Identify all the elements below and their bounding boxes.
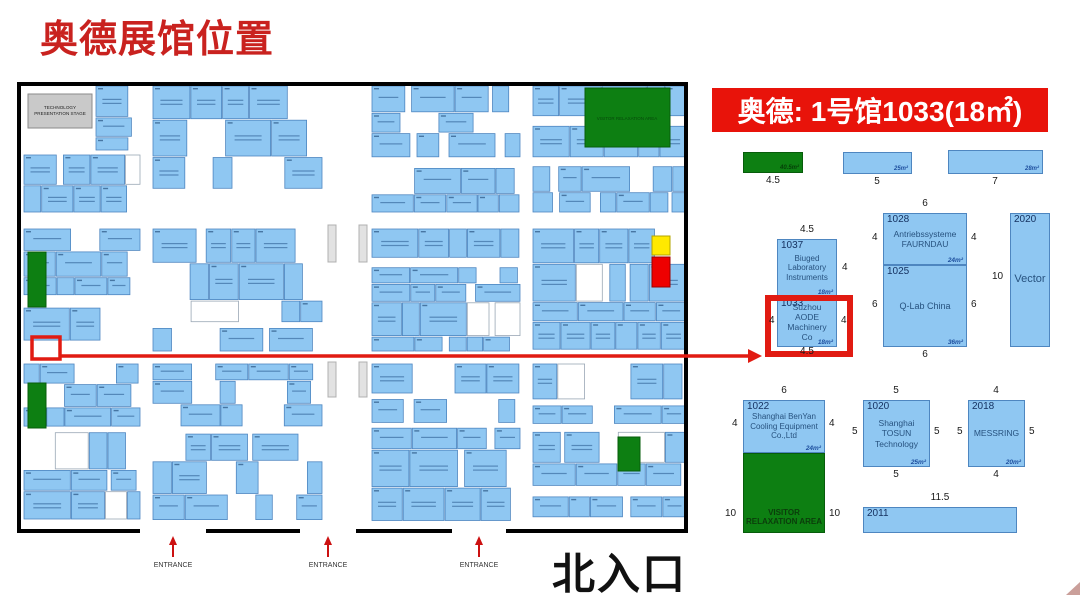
legend-booth-28: 28m² — [948, 150, 1043, 174]
map-booth — [541, 243, 565, 244]
map-booth — [414, 88, 419, 89]
map-booth — [106, 492, 127, 519]
map-booth — [624, 413, 652, 414]
dimension-label: 4.5 — [793, 224, 821, 235]
map-booth — [403, 488, 444, 520]
map-booth — [214, 436, 219, 437]
map-booth — [540, 139, 562, 140]
map-booth — [662, 310, 680, 311]
map-booth — [419, 229, 449, 257]
map-booth — [76, 188, 81, 189]
map-booth — [33, 503, 61, 504]
map-booth — [667, 434, 672, 435]
map-booth — [117, 416, 134, 417]
map-booth — [533, 432, 560, 462]
map-booth — [668, 505, 682, 506]
map-booth — [631, 364, 663, 399]
relaxation-area-label: VISITOR RELAXATION AREA — [744, 508, 824, 526]
map-booth — [153, 495, 184, 520]
map-booth — [89, 433, 107, 469]
map-booth — [71, 394, 90, 395]
map-booth — [159, 505, 178, 506]
map-booth — [256, 229, 295, 262]
dimension-label: 6 — [911, 349, 939, 360]
map-booth — [186, 434, 211, 460]
map-booth — [218, 366, 223, 367]
booth-name: MESSRING — [969, 401, 1024, 466]
map-booth — [47, 408, 64, 426]
map-booth — [455, 364, 486, 393]
dimension-label: 10 — [725, 508, 736, 519]
map-booth — [474, 245, 494, 246]
map-booth — [572, 128, 577, 129]
dimension-label: 5 — [957, 426, 963, 437]
map-booth — [559, 167, 581, 192]
map-booth — [374, 339, 379, 340]
map-booth — [282, 301, 300, 322]
map-booth — [539, 449, 555, 450]
booth-field — [24, 86, 686, 521]
map-booth — [286, 407, 291, 408]
map-booth — [414, 400, 447, 423]
map-booth — [634, 243, 649, 244]
dimension-label: 5 — [882, 469, 910, 480]
map-booth — [538, 99, 553, 100]
map-booth — [374, 452, 379, 453]
map-booth — [449, 337, 466, 351]
corner-decoration — [1066, 582, 1080, 595]
map-booth — [78, 503, 98, 504]
map-booth — [438, 286, 443, 287]
map-booth — [248, 279, 275, 280]
map-booth — [292, 170, 314, 171]
dimension-label: 4.5 — [793, 346, 821, 357]
dimension-label: 4 — [872, 232, 878, 243]
map-booth — [223, 86, 249, 119]
map-booth — [449, 197, 454, 198]
area-label: 20m² — [1006, 459, 1021, 466]
map-booth — [442, 292, 460, 293]
map-booth — [616, 322, 637, 349]
map-booth — [26, 494, 31, 495]
map-booth — [481, 488, 510, 520]
map-booth — [264, 243, 288, 244]
map-booth — [103, 188, 108, 189]
map-booth — [445, 488, 480, 520]
map-booth — [104, 254, 109, 255]
map-booth — [374, 231, 379, 232]
map-booth — [430, 321, 458, 322]
map-booth — [372, 134, 410, 157]
map-booth — [197, 104, 215, 105]
map-booth — [542, 310, 569, 311]
map-booth — [666, 338, 681, 339]
map-booth — [535, 324, 540, 325]
map-booth — [567, 338, 585, 339]
area-label: 28m² — [1025, 166, 1039, 172]
area-label: 25m² — [911, 459, 926, 466]
map-booth — [292, 174, 314, 175]
map-booth — [419, 136, 424, 137]
map-booth — [106, 197, 121, 198]
map-booth — [378, 317, 396, 318]
map-booth — [251, 366, 256, 367]
map-booth — [302, 505, 317, 506]
north-gate-label: 北入口 — [552, 540, 687, 595]
map-booth — [187, 497, 192, 498]
map-booth — [98, 88, 103, 89]
map-booth — [473, 470, 498, 471]
map-booth — [116, 479, 131, 480]
dimension-label: 5 — [882, 385, 910, 396]
dimension-label: 4.5 — [759, 175, 787, 186]
map-booth — [422, 305, 427, 306]
map-booth — [93, 157, 98, 158]
map-booth — [114, 410, 119, 411]
map-booth — [591, 322, 615, 349]
map-booth — [258, 231, 263, 232]
map-booth — [102, 103, 121, 104]
map-booth — [292, 391, 306, 392]
entrance-arrow-icon — [169, 536, 177, 545]
map-booth — [484, 292, 511, 293]
map-booth — [113, 472, 118, 473]
dimension-label: 5 — [863, 176, 891, 187]
map-booth — [499, 195, 519, 212]
map-booth — [33, 326, 60, 327]
map-booth — [70, 308, 100, 340]
map-booth — [257, 100, 280, 101]
map-booth — [584, 169, 589, 170]
map-booth — [211, 247, 226, 248]
map-booth — [493, 86, 509, 112]
map-booth — [571, 499, 576, 500]
map-booth — [58, 254, 63, 255]
map-booth — [153, 328, 172, 351]
booth-name: Shanghai TOSUN Technology — [864, 401, 929, 466]
map-booth — [421, 437, 448, 438]
red-booth — [652, 257, 670, 287]
map-booth — [421, 409, 441, 410]
map-booth — [480, 197, 485, 198]
map-booth — [236, 243, 250, 244]
map-booth — [374, 197, 379, 198]
dimension-label: 11.5 — [926, 492, 954, 503]
map-booth — [222, 330, 227, 331]
map-booth — [374, 402, 379, 403]
map-booth — [96, 138, 128, 150]
dimension-label: 4 — [982, 385, 1010, 396]
map-booth — [533, 126, 569, 157]
map-booth — [460, 430, 465, 431]
map-booth — [179, 479, 199, 480]
map-booth — [539, 413, 556, 414]
map-booth — [446, 121, 467, 122]
map-booth — [155, 383, 160, 384]
map-booth — [563, 177, 576, 178]
map-booth — [77, 280, 82, 281]
map-booth — [72, 310, 77, 311]
legend-booth-green: 40.5m² — [743, 152, 803, 173]
map-booth — [642, 334, 655, 335]
map-booth — [665, 432, 686, 462]
map-booth — [411, 502, 436, 503]
map-booth — [33, 238, 61, 239]
map-booth — [374, 430, 379, 431]
map-booth — [160, 100, 182, 101]
map-booth — [223, 407, 228, 408]
map-booth — [540, 505, 561, 506]
map-booth — [592, 177, 621, 178]
map-booth — [421, 231, 426, 232]
map-booth — [278, 338, 304, 339]
map-booth — [535, 499, 540, 500]
dimension-label: 4 — [982, 469, 1010, 480]
map-booth — [55, 433, 88, 469]
map-booth — [108, 238, 132, 239]
map-booth — [118, 366, 123, 367]
map-booth — [190, 264, 208, 300]
map-booth — [33, 507, 61, 508]
map-booth — [419, 470, 448, 471]
map-booth — [372, 364, 412, 393]
map-booth — [540, 143, 562, 144]
map-booth — [374, 136, 379, 137]
aode-location-banner: 奥德: 1号馆1033(18㎡) — [712, 88, 1048, 132]
map-booth — [241, 266, 246, 267]
dimension-label: 4 — [769, 315, 775, 326]
map-booth — [294, 371, 308, 372]
pillar — [328, 225, 336, 262]
map-booth — [500, 437, 515, 438]
dimension-label: 6 — [872, 299, 878, 310]
booth-1028: 1028 Antriebssysteme FAURNDAU 24m² — [883, 213, 967, 265]
map-booth — [565, 432, 599, 462]
map-booth — [189, 414, 212, 415]
map-booth — [415, 168, 461, 193]
map-booth — [236, 462, 258, 494]
map-booth — [65, 262, 92, 263]
pillar — [328, 362, 336, 397]
map-booth — [459, 268, 476, 283]
map-booth — [228, 100, 244, 101]
map-booth — [212, 434, 248, 460]
map-booth — [623, 473, 639, 474]
booth-name: Q-Lab China — [884, 266, 966, 346]
map-booth — [264, 247, 288, 248]
map-booth — [462, 97, 482, 98]
map-booth — [419, 466, 448, 467]
map-booth — [106, 201, 121, 202]
map-booth — [478, 286, 483, 287]
map-booth — [42, 366, 47, 367]
map-booth — [108, 433, 126, 469]
booth-2018: 2018 MESSRING 20m² — [968, 400, 1025, 467]
map-booth — [67, 387, 72, 388]
map-booth — [185, 495, 227, 520]
map-booth — [420, 274, 448, 275]
map-booth — [47, 372, 67, 373]
map-booth — [229, 338, 255, 339]
map-booth — [567, 434, 572, 435]
map-booth — [232, 229, 255, 262]
map-booth — [580, 305, 585, 306]
map-booth — [63, 155, 90, 184]
map-booth — [572, 445, 593, 446]
map-booth — [102, 231, 107, 232]
map-booth — [417, 134, 439, 157]
map-booth — [378, 502, 396, 503]
map-booth — [155, 231, 160, 232]
map-booth — [374, 490, 379, 491]
area-label: 24m² — [806, 445, 821, 452]
map-booth — [420, 303, 466, 336]
map-booth — [533, 264, 575, 301]
booth-2011: 2011 — [863, 507, 1017, 533]
map-booth — [487, 506, 505, 507]
map-booth — [558, 364, 585, 399]
map-booth — [461, 376, 480, 377]
map-booth — [153, 229, 196, 262]
map-booth — [633, 366, 638, 367]
booth-1025: 1025 Q-Lab China 36m² — [883, 265, 967, 347]
map-booth — [405, 490, 410, 491]
map-booth — [493, 376, 512, 377]
map-booth — [215, 279, 232, 280]
dimension-label: 4 — [841, 315, 847, 326]
map-booth — [666, 334, 681, 335]
map-booth — [26, 472, 31, 473]
map-booth — [616, 408, 621, 409]
map-booth — [226, 120, 271, 156]
map-booth — [380, 437, 404, 438]
entrance-label: ENTRANCE — [460, 562, 499, 569]
map-booth — [424, 179, 452, 180]
map-booth — [291, 366, 296, 367]
map-booth — [425, 241, 443, 242]
map-booth — [69, 167, 85, 168]
visitor-relaxation-area: VISITOR RELAXATION AREA — [743, 453, 825, 533]
map-booth — [378, 321, 396, 322]
map-booth — [24, 492, 70, 519]
map-booth — [410, 450, 458, 486]
map-booth — [212, 266, 217, 267]
map-booth — [634, 247, 649, 248]
map-booth — [222, 371, 241, 372]
map-booth — [374, 270, 379, 271]
green-booth-left-upper — [28, 252, 46, 307]
green-booth-bottom-right — [618, 437, 640, 471]
map-booth — [253, 434, 298, 460]
dimension-label: 4 — [829, 418, 835, 429]
map-booth — [535, 128, 540, 129]
locator-arrow-head — [748, 349, 762, 363]
entrances: ENTRANCE ENTRANCE ENTRANCE — [154, 536, 499, 569]
map-booth — [252, 88, 257, 89]
booth-1020: 1020 Shanghai TOSUN Technology 25m² — [863, 400, 930, 467]
map-booth — [379, 466, 401, 467]
map-booth — [487, 502, 505, 503]
map-booth — [441, 115, 446, 116]
entrance-label: ENTRANCE — [309, 562, 348, 569]
map-booth — [378, 409, 397, 410]
map-booth — [219, 449, 241, 450]
map-booth — [160, 139, 180, 140]
map-booth — [489, 366, 494, 367]
map-booth — [500, 268, 517, 283]
map-booth — [213, 158, 232, 189]
map-booth — [79, 479, 100, 480]
map-booth — [577, 231, 582, 232]
map-booth — [193, 88, 198, 89]
map-booth — [44, 188, 49, 189]
map-booth — [155, 497, 160, 498]
map-booth — [128, 492, 141, 519]
map-booth — [103, 126, 124, 127]
map-booth — [380, 274, 403, 275]
map-booth — [458, 143, 486, 144]
map-booth — [618, 324, 623, 325]
map-booth — [71, 492, 104, 519]
map-booth — [412, 86, 455, 112]
map-booth — [468, 179, 488, 180]
map-booth — [411, 506, 436, 507]
map-booth — [159, 174, 178, 175]
map-booth — [250, 86, 288, 119]
map-booth — [102, 252, 127, 276]
map-booth — [533, 86, 559, 116]
entrance-arrow-icon — [324, 536, 332, 545]
map-booth — [465, 450, 507, 486]
map-booth — [78, 507, 98, 508]
map-booth — [262, 449, 289, 450]
map-booth — [416, 292, 430, 293]
map-booth — [637, 383, 656, 384]
map-booth — [605, 243, 622, 244]
map-booth — [626, 305, 631, 306]
map-booth — [374, 115, 379, 116]
map-booth — [664, 408, 669, 409]
map-booth — [416, 402, 421, 403]
map-booth — [74, 416, 101, 417]
map-booth — [496, 168, 514, 193]
map-booth — [566, 201, 584, 202]
map-booth — [416, 197, 421, 198]
map-booth — [561, 322, 590, 349]
map-booth — [307, 462, 322, 494]
map-booth — [24, 186, 41, 212]
map-booth — [425, 245, 443, 246]
map-booth — [210, 264, 239, 300]
map-booth — [160, 104, 182, 105]
map-booth — [455, 86, 488, 112]
map-booth — [194, 505, 219, 506]
map-booth — [33, 322, 60, 323]
map-booth — [417, 170, 422, 171]
map-booth — [31, 167, 50, 168]
map-booth — [112, 285, 125, 286]
map-booth — [206, 229, 231, 262]
map-booth — [374, 366, 379, 367]
map-booth — [535, 408, 540, 409]
map-booth — [73, 494, 78, 495]
dimension-label: 5 — [1029, 426, 1035, 437]
map-booth — [665, 499, 670, 500]
map-booth — [535, 266, 540, 267]
map-booth — [535, 231, 540, 232]
map-booth — [633, 499, 638, 500]
dimension-label: 6 — [971, 299, 977, 310]
